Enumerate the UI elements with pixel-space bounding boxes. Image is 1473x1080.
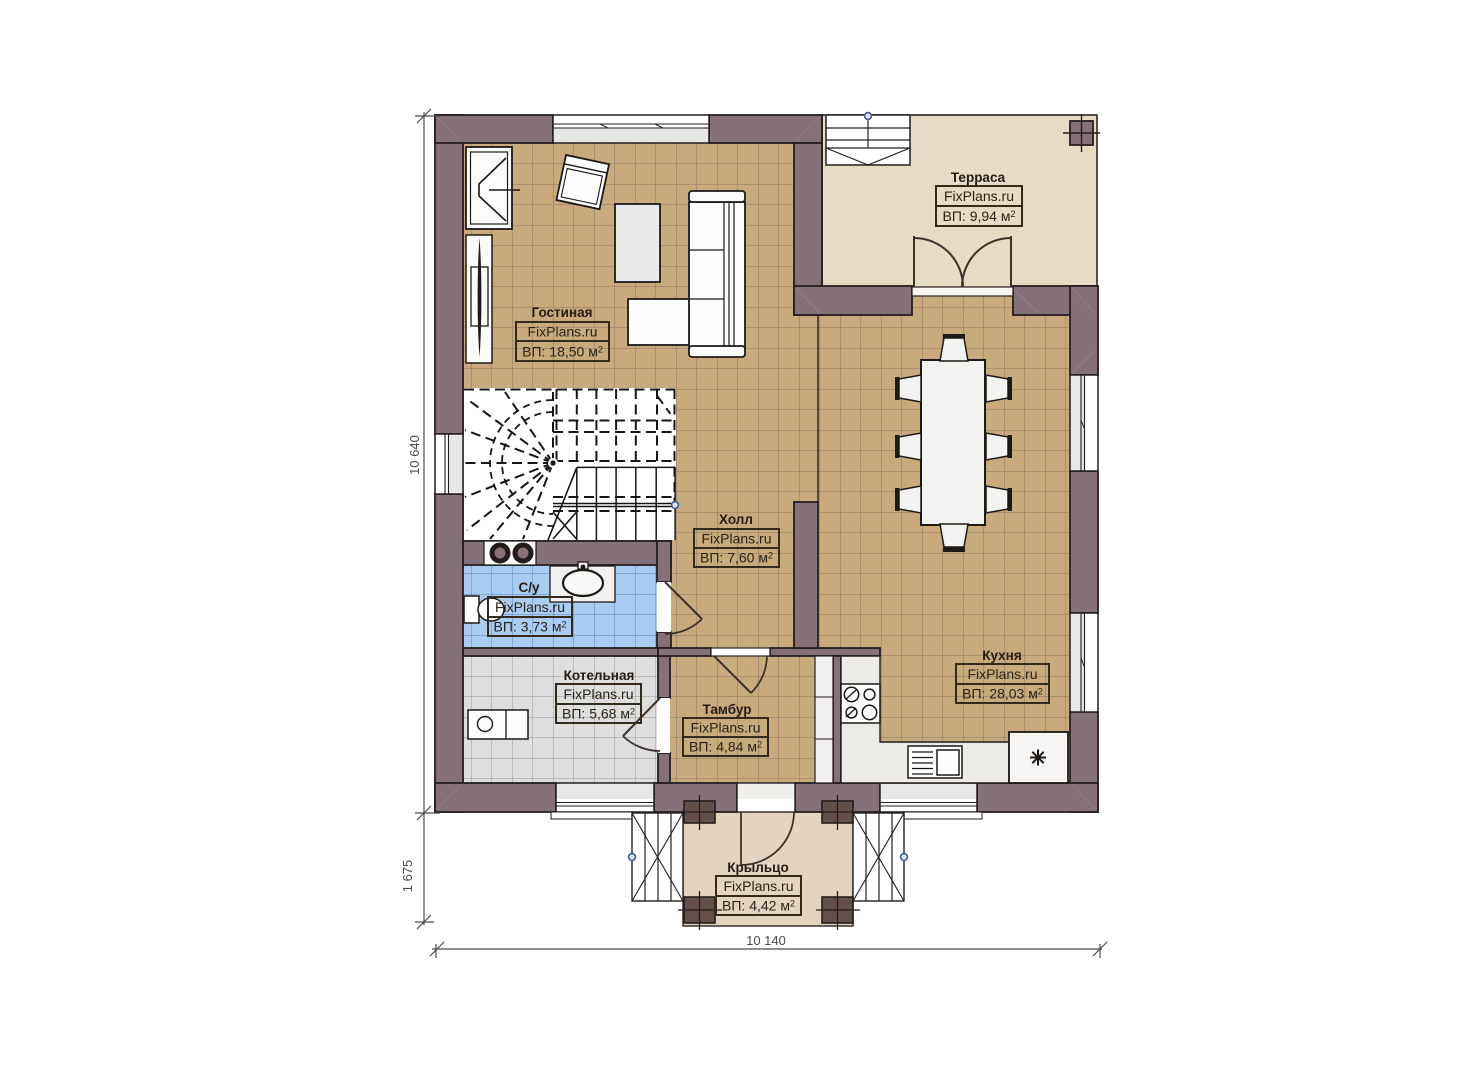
svg-text:1 675: 1 675 — [400, 860, 415, 893]
svg-text:ВП: 4,42 м2: ВП: 4,42 м2 — [722, 898, 795, 914]
svg-text:ВП: 5,68 м2: ВП: 5,68 м2 — [562, 706, 635, 722]
svg-text:FixPlans.ru: FixPlans.ru — [527, 324, 597, 340]
svg-text:Гостиная: Гостиная — [531, 305, 592, 320]
svg-text:10 140: 10 140 — [746, 933, 786, 948]
svg-text:ВП: 28,03 м2: ВП: 28,03 м2 — [962, 686, 1043, 702]
svg-text:10 640: 10 640 — [407, 435, 422, 475]
svg-text:ВП: 9,94 м2: ВП: 9,94 м2 — [943, 208, 1016, 224]
svg-text:Терраса: Терраса — [951, 170, 1006, 185]
svg-text:FixPlans.ru: FixPlans.ru — [690, 720, 760, 736]
svg-text:ВП: 4,84 м2: ВП: 4,84 м2 — [689, 739, 762, 755]
svg-text:С/у: С/у — [518, 580, 540, 595]
svg-text:FixPlans.ru: FixPlans.ru — [944, 188, 1014, 204]
svg-text:FixPlans.ru: FixPlans.ru — [701, 531, 771, 547]
svg-text:FixPlans.ru: FixPlans.ru — [967, 666, 1037, 682]
svg-text:Котельная: Котельная — [564, 668, 635, 683]
svg-text:Кухня: Кухня — [982, 648, 1021, 663]
svg-text:ВП: 7,60 м2: ВП: 7,60 м2 — [700, 550, 773, 566]
svg-text:FixPlans.ru: FixPlans.ru — [495, 599, 565, 615]
svg-text:FixPlans.ru: FixPlans.ru — [563, 686, 633, 702]
svg-text:FixPlans.ru: FixPlans.ru — [723, 878, 793, 894]
svg-text:Крыльцо: Крыльцо — [727, 860, 788, 875]
svg-text:ВП: 3,73 м2: ВП: 3,73 м2 — [494, 619, 567, 635]
svg-text:Тамбур: Тамбур — [703, 702, 752, 717]
svg-text:ВП: 18,50 м2: ВП: 18,50 м2 — [522, 344, 603, 360]
svg-text:Холл: Холл — [719, 512, 753, 527]
